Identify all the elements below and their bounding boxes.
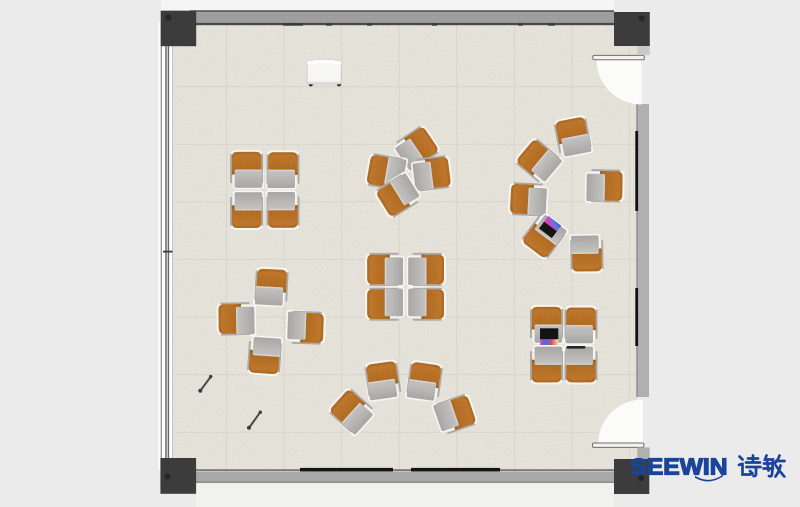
svg-text:SEEWIN: SEEWIN bbox=[631, 453, 728, 479]
